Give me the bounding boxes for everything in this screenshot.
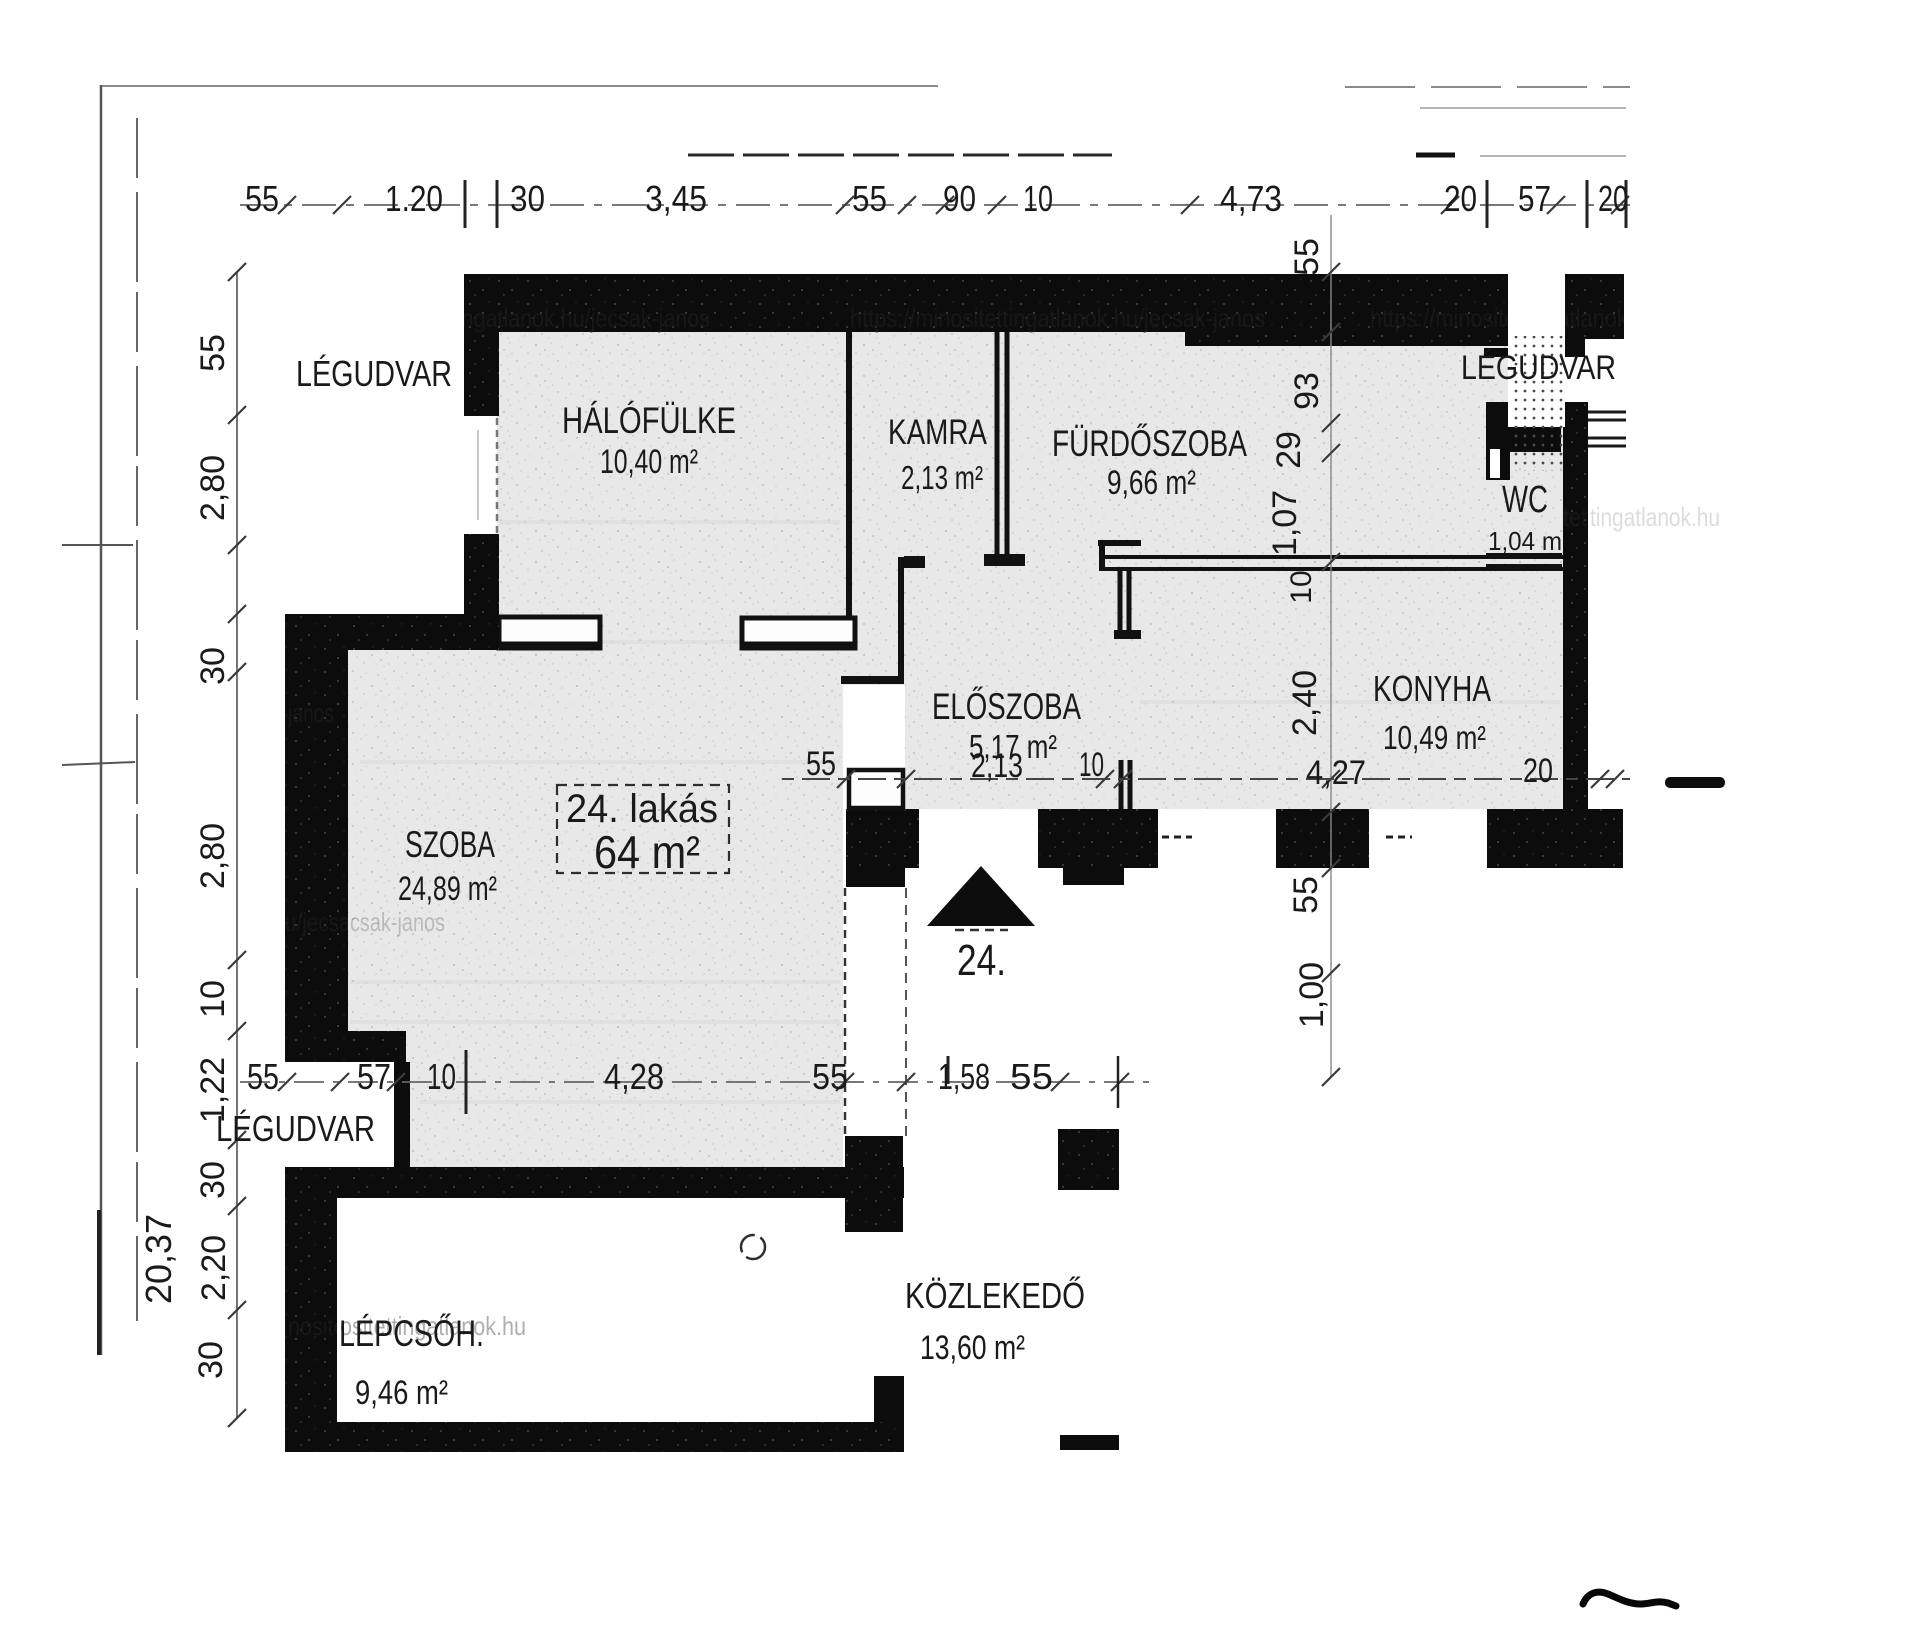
svg-text:KONYHA: KONYHA	[1373, 668, 1491, 709]
svg-text:LÉGUDVAR: LÉGUDVAR	[296, 353, 452, 394]
svg-text:1,00: 1,00	[1293, 962, 1331, 1028]
svg-text:2,40: 2,40	[1286, 670, 1324, 736]
svg-text:2,13 m²: 2,13 m²	[901, 459, 983, 496]
svg-text:10: 10	[194, 980, 232, 1018]
svg-text:4,73: 4,73	[1220, 178, 1282, 219]
svg-text:2,80: 2,80	[194, 455, 232, 521]
svg-text:90: 90	[943, 178, 976, 219]
svg-text:29: 29	[1270, 431, 1308, 469]
svg-text:30: 30	[194, 647, 232, 685]
svg-text:30: 30	[510, 178, 545, 219]
svg-text:13,60 m²: 13,60 m²	[920, 1329, 1025, 1367]
svg-text:20,37: 20,37	[138, 1214, 179, 1304]
svg-text:10: 10	[1285, 570, 1318, 603]
svg-text:9,46 m²: 9,46 m²	[355, 1374, 448, 1412]
svg-text:10,40 m²: 10,40 m²	[600, 443, 698, 481]
svg-text:30: 30	[192, 1341, 230, 1379]
svg-text:10: 10	[1023, 178, 1053, 219]
svg-text:55: 55	[245, 178, 279, 219]
svg-text:20: 20	[1598, 178, 1628, 219]
svg-text:1.20: 1.20	[385, 178, 443, 219]
svg-text:9,66 m²: 9,66 m²	[1107, 464, 1196, 502]
svg-text:55: 55	[1288, 238, 1326, 276]
svg-text:55: 55	[806, 745, 836, 783]
svg-text:LÉGUDVAR: LÉGUDVAR	[1461, 349, 1616, 387]
svg-text:HÁLÓFÜLKE: HÁLÓFÜLKE	[562, 400, 736, 441]
svg-text:55: 55	[812, 1056, 848, 1097]
svg-text:tingatlanok.hu: tingatlanok.hu	[1590, 502, 1720, 532]
svg-text:KÖZLEKEDŐ: KÖZLEKEDŐ	[905, 1275, 1085, 1316]
svg-text:57: 57	[1518, 178, 1551, 219]
svg-text:1,07: 1,07	[1266, 490, 1304, 556]
svg-text:10: 10	[1079, 746, 1104, 784]
svg-text:55: 55	[1010, 1056, 1053, 1097]
svg-text:ositettingatlanok.hu: ositettingatlanok.hu	[340, 1311, 526, 1341]
svg-text:24. lakás: 24. lakás	[566, 787, 718, 831]
svg-text:57: 57	[357, 1056, 391, 1097]
svg-text:30: 30	[194, 1161, 232, 1199]
svg-text:LÉGUDVAR: LÉGUDVAR	[216, 1108, 375, 1149]
svg-text:55: 55	[1287, 876, 1325, 914]
svg-text:2,80: 2,80	[194, 823, 232, 889]
svg-text:4,27: 4,27	[1306, 754, 1366, 792]
svg-text:WC: WC	[1502, 479, 1548, 521]
svg-text:55: 55	[852, 178, 887, 219]
svg-text:10,49 m²: 10,49 m²	[1383, 719, 1486, 756]
svg-text:1,58: 1,58	[938, 1056, 990, 1097]
svg-text:SZOBA: SZOBA	[405, 824, 495, 865]
svg-text:1,04 m: 1,04 m	[1488, 526, 1562, 556]
svg-text:KAMRA: KAMRA	[888, 413, 988, 452]
svg-text:64 m²: 64 m²	[594, 826, 700, 878]
svg-text:ettingatlanok.hu/jecsak-janos: ettingatlanok.hu/jecsak-janos	[433, 303, 710, 333]
svg-text:93: 93	[1288, 372, 1326, 410]
svg-text:4,28: 4,28	[604, 1056, 664, 1097]
svg-text:ELŐSZOBA: ELŐSZOBA	[932, 686, 1081, 727]
svg-text:20: 20	[1444, 178, 1477, 219]
svg-text:10: 10	[427, 1056, 456, 1097]
svg-text:2,13: 2,13	[971, 747, 1023, 785]
svg-text:55: 55	[247, 1056, 279, 1097]
svg-text:csak-janos: csak-janos	[350, 907, 445, 937]
svg-text:20: 20	[1523, 752, 1553, 790]
svg-text:https://minositettingatlanok.h: https://minositettingatlanok.hu/jecsak-j…	[850, 303, 1265, 333]
svg-text:24.: 24.	[957, 936, 1006, 985]
svg-text:24,89 m²: 24,89 m²	[398, 870, 497, 908]
svg-text:55: 55	[194, 334, 232, 372]
svg-text:1,22: 1,22	[194, 1057, 232, 1123]
svg-text:3,45: 3,45	[645, 178, 707, 219]
svg-text:2,20: 2,20	[195, 1235, 233, 1301]
svg-text:FÜRDŐSZOBA: FÜRDŐSZOBA	[1052, 423, 1247, 464]
